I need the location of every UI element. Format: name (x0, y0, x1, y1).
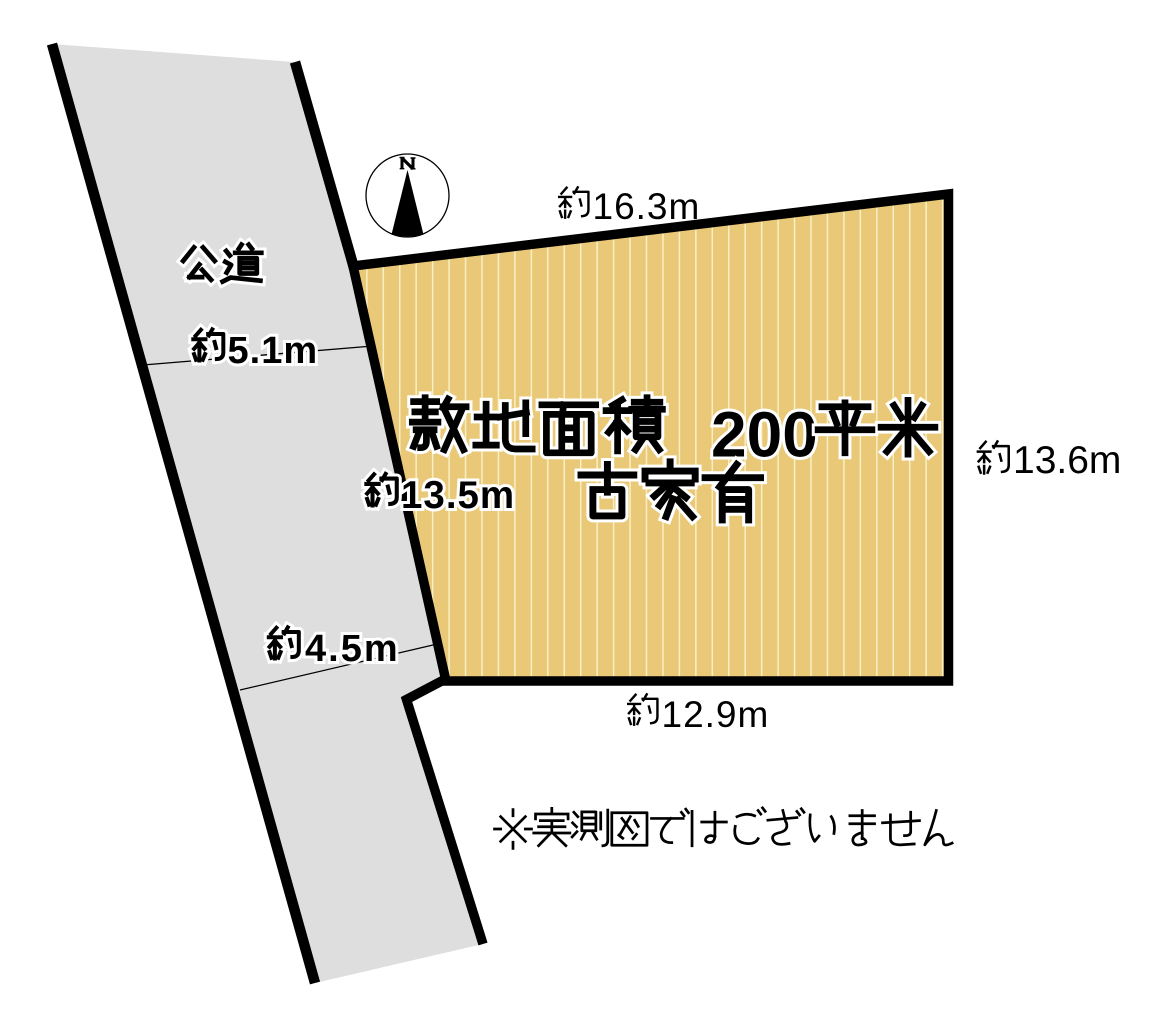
svg-text:12.9m: 12.9m (662, 694, 770, 735)
svg-text:5.1m: 5.1m (228, 330, 319, 372)
svg-text:13.5m: 13.5m (401, 474, 515, 517)
svg-text:200: 200 (711, 399, 818, 471)
svg-text:16.3m: 16.3m (593, 186, 701, 227)
svg-text:13.6m: 13.6m (1013, 439, 1121, 482)
svg-text:4.5m: 4.5m (305, 628, 400, 670)
